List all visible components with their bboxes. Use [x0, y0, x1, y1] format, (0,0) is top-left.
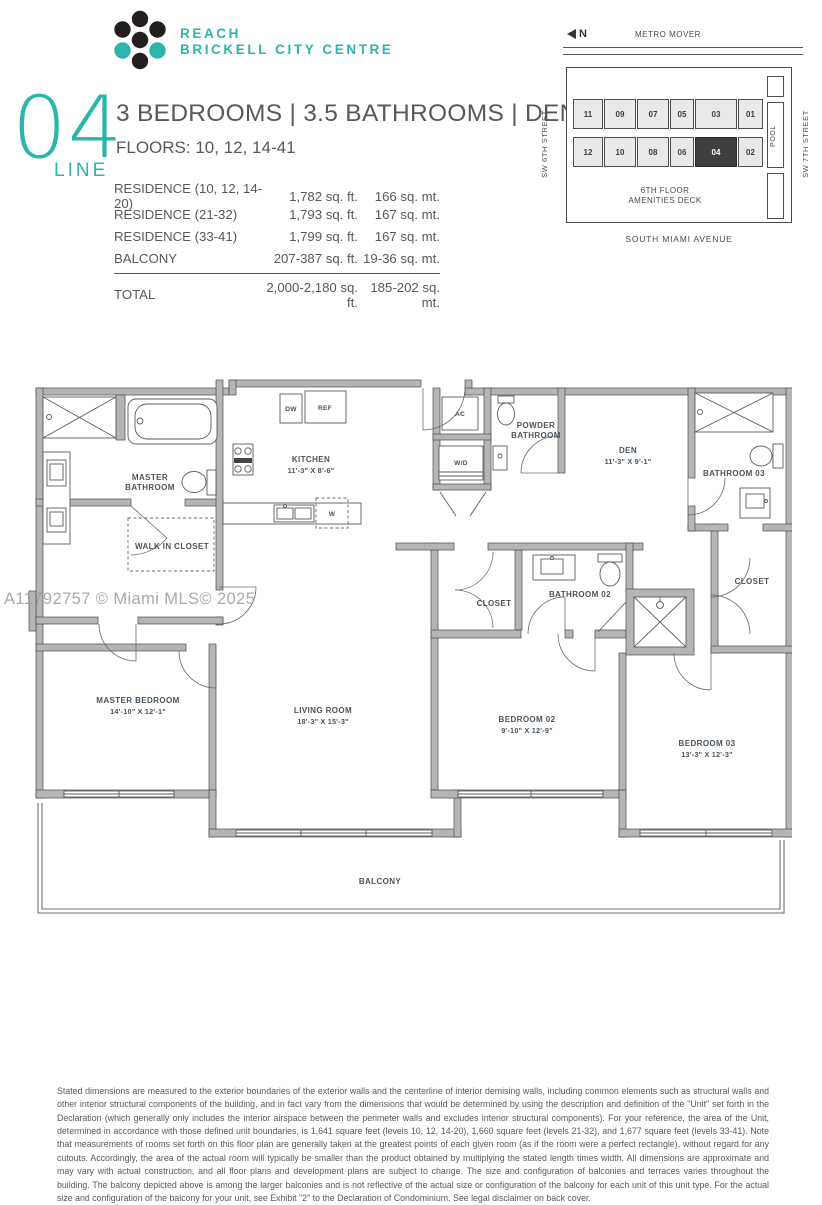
label-bedroom02-dims: 9'-10" X 12'-9" [501, 726, 553, 735]
row-label: RESIDENCE (33-41) [114, 229, 266, 244]
site-unit-10: 10 [604, 137, 636, 167]
brand-logo-dots-icon [109, 9, 171, 73]
tub-faucet-icon [137, 418, 143, 424]
label-bathroom03: BATHROOM 03 [703, 469, 765, 478]
metro-rail-line [563, 54, 803, 55]
site-unit-05: 05 [670, 99, 694, 129]
site-unit-04-highlighted: 04 [695, 137, 737, 167]
total-sqft: 2,000-2,180 sq. ft. [266, 280, 358, 310]
label-master-bedroom: MASTER BEDROOM [96, 696, 179, 705]
label-den: DEN [619, 446, 637, 455]
unit-row-top: 11 09 07 05 03 01 [573, 99, 763, 129]
site-unit-02: 02 [738, 137, 763, 167]
north-arrow-icon [567, 29, 576, 39]
site-key-map: N METRO MOVER 11 09 07 05 03 01 12 10 08… [533, 20, 822, 265]
street-left-label: SW 6TH STREET [540, 89, 552, 199]
bathroom03-fixtures [695, 393, 783, 518]
amenities-label: 6TH FLOOR AMENITIES DECK [585, 186, 745, 206]
toilet-tank [773, 444, 783, 468]
site-unit-06: 06 [670, 137, 694, 167]
north-label: N [579, 28, 587, 40]
label-living-room-dims: 18'-3" X 15'-3" [297, 717, 349, 726]
north-indicator: N [567, 28, 587, 40]
label-den-dims: 11'-3" X 9'-1" [605, 457, 652, 466]
master-bathroom-fixtures [43, 397, 217, 544]
site-unit-09: 09 [604, 99, 636, 129]
line-label: LINE [54, 160, 108, 182]
label-kitchen-dims: 11'-3" X 8'-6" [288, 466, 335, 475]
row-sqft: 1,793 sq. ft. [266, 207, 358, 222]
metro-mover-label: METRO MOVER [603, 30, 733, 39]
toilet-tank [207, 470, 216, 495]
table-row: RESIDENCE (21-32) 1,793 sq. ft. 167 sq. … [114, 203, 440, 225]
amenities-line2: AMENITIES DECK [585, 196, 745, 206]
label-dw: DW [285, 406, 297, 413]
sink [746, 494, 764, 508]
row-label: RESIDENCE (21-32) [114, 207, 266, 222]
site-unit-03: 03 [695, 99, 737, 129]
total-sqmt: 185-202 sq. mt. [358, 280, 440, 310]
label-closet-right: CLOSET [735, 577, 770, 586]
table-total-row: TOTAL 2,000-2,180 sq. ft. 185-202 sq. mt… [114, 273, 440, 295]
street-right-label: SW 7TH STREET [801, 89, 813, 199]
table-row: BALCONY 207-387 sq. ft. 19-36 sq. mt. [114, 248, 440, 270]
pool-box: POOL [767, 102, 784, 168]
balcony-outline [38, 803, 784, 913]
label-master-bathroom-2: BATHROOM [125, 483, 175, 492]
row-label: BALCONY [114, 251, 266, 266]
row-sqft: 1,799 sq. ft. [266, 229, 358, 244]
toilet-bowl [600, 562, 620, 586]
label-ac: AC [455, 411, 465, 418]
site-unit-07: 07 [637, 99, 669, 129]
row-sqmt: 19-36 sq. mt. [358, 251, 440, 266]
line-number: 04 [12, 92, 123, 165]
brand-logo [109, 9, 171, 73]
site-unit-01: 01 [738, 99, 763, 129]
unit-row-bottom: 12 10 08 06 04 02 [573, 137, 763, 167]
label-ref: REF [318, 405, 332, 412]
label-bedroom02: BEDROOM 02 [499, 715, 556, 724]
label-bedroom03-dims: 13'-3" X 12'-3" [681, 750, 733, 759]
label-w: W [329, 511, 336, 518]
label-master-bedroom-dims: 14'-10" X 12'-1" [110, 707, 166, 716]
area-table: RESIDENCE (10, 12, 14-20) 1,782 sq. ft. … [114, 181, 440, 295]
site-unit-12: 12 [573, 137, 603, 167]
amenities-line1: 6TH FLOOR [585, 186, 745, 196]
label-walk-in-closet: WALK IN CLOSET [135, 542, 209, 551]
site-unit-08: 08 [637, 137, 669, 167]
brand-line2: BRICKELL CITY CENTRE [180, 42, 394, 58]
row-sqmt: 166 sq. mt. [358, 189, 440, 204]
building-outline: 11 09 07 05 03 01 12 10 08 06 04 02 POOL… [566, 67, 792, 223]
floor-plan: MASTER BATHROOM WALK IN CLOSET KITCHEN 1… [28, 366, 792, 932]
sink [541, 559, 563, 574]
metro-rail-line [563, 47, 803, 48]
label-powder-2: BATHROOM [511, 431, 561, 440]
site-structure-box [767, 173, 784, 219]
label-living-room: LIVING ROOM [294, 706, 352, 715]
bathroom02-fixtures [533, 554, 694, 655]
row-sqft: 207-387 sq. ft. [266, 251, 358, 266]
page-title: 3 BEDROOMS | 3.5 BATHROOMS | DEN [116, 100, 578, 128]
row-sqft: 1,782 sq. ft. [266, 189, 358, 204]
label-balcony: BALCONY [359, 877, 402, 886]
label-bathroom02: BATHROOM 02 [549, 590, 611, 599]
avenue-label: SOUTH MIAMI AVENUE [566, 234, 792, 244]
exterior-window-walls [36, 790, 792, 837]
brand-name: REACH BRICKELL CITY CENTRE [180, 26, 394, 58]
toilet-tank [498, 396, 514, 403]
label-wd: W/D [454, 460, 468, 467]
label-powder-1: POWDER [517, 421, 555, 430]
label-bedroom03: BEDROOM 03 [679, 739, 736, 748]
toilet-bowl [498, 403, 515, 425]
label-closet-left: CLOSET [477, 599, 512, 608]
mls-watermark: A11792757 © Miami MLS© 2025 [4, 590, 255, 609]
toilet-bowl [750, 446, 772, 466]
total-label: TOTAL [114, 287, 266, 302]
legal-disclaimer: Stated dimensions are measured to the ex… [57, 1085, 769, 1205]
toilet-bowl [182, 472, 206, 493]
floor-plan-drawing: MASTER BATHROOM WALK IN CLOSET KITCHEN 1… [28, 366, 792, 932]
brand-line1: REACH [180, 26, 394, 42]
shower-head-icon [47, 415, 52, 420]
site-unit-11: 11 [573, 99, 603, 129]
table-row: RESIDENCE (10, 12, 14-20) 1,782 sq. ft. … [114, 181, 440, 203]
row-sqmt: 167 sq. mt. [358, 229, 440, 244]
row-sqmt: 167 sq. mt. [358, 207, 440, 222]
floors-line: FLOORS: 10, 12, 14-41 [116, 138, 296, 158]
label-kitchen: KITCHEN [292, 455, 330, 464]
label-master-bathroom-1: MASTER [132, 473, 168, 482]
table-row: RESIDENCE (33-41) 1,799 sq. ft. 167 sq. … [114, 225, 440, 247]
toilet-tank [598, 554, 622, 562]
